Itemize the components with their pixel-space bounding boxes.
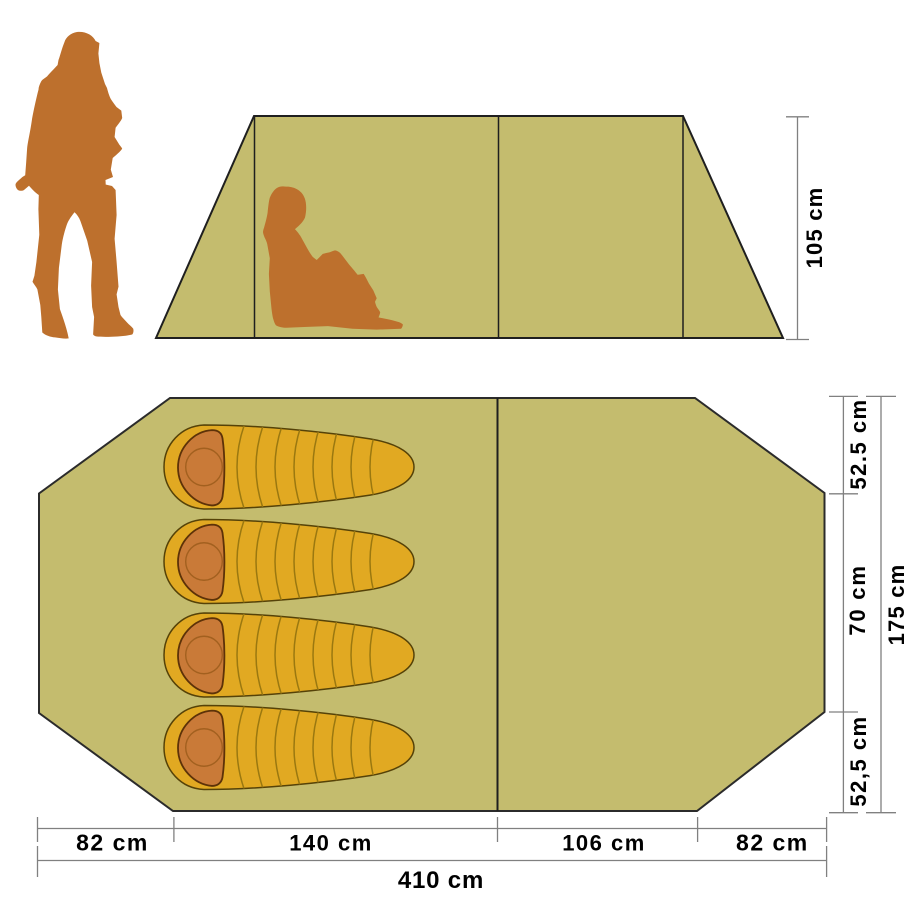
svg-text:82 cm: 82 cm — [736, 830, 809, 856]
svg-text:410 cm: 410 cm — [398, 867, 484, 894]
svg-text:105 cm: 105 cm — [802, 187, 827, 269]
svg-text:140 cm: 140 cm — [289, 831, 373, 856]
svg-text:82 cm: 82 cm — [76, 830, 149, 856]
svg-text:52,5 cm: 52,5 cm — [846, 715, 871, 806]
svg-text:70 cm: 70 cm — [845, 564, 870, 635]
svg-text:52.5 cm: 52.5 cm — [846, 398, 871, 489]
svg-text:106 cm: 106 cm — [562, 831, 646, 856]
svg-text:175 cm: 175 cm — [884, 564, 909, 646]
